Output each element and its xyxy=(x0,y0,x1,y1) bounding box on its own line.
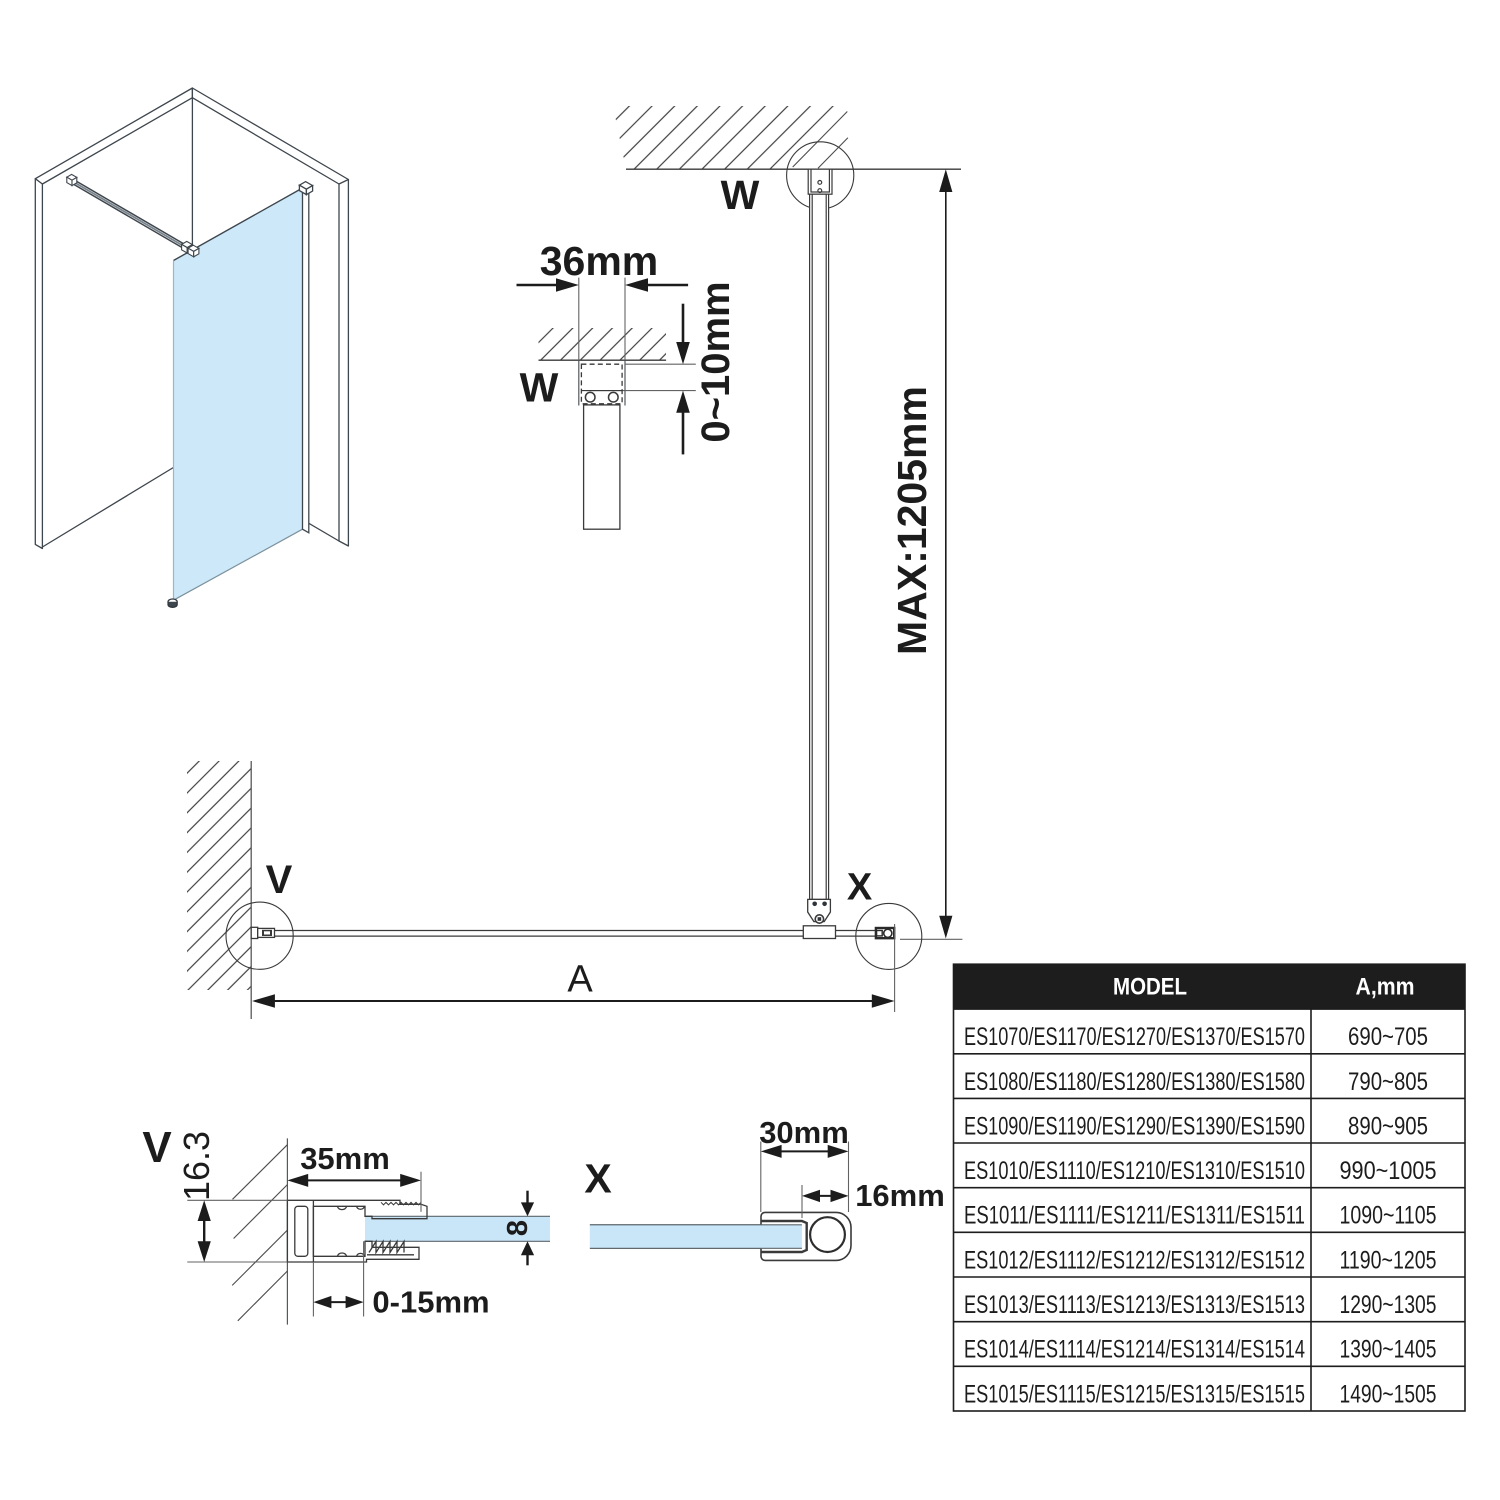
svg-text:0-15mm: 0-15mm xyxy=(372,1285,489,1320)
svg-text:ES1014/ES1114/ES1214/ES1314/ES: ES1014/ES1114/ES1214/ES1314/ES1514 xyxy=(964,1336,1305,1364)
svg-text:V: V xyxy=(266,858,293,902)
svg-text:35mm: 35mm xyxy=(300,1141,390,1176)
svg-text:ES1070/ES1170/ES1270/ES1370/ES: ES1070/ES1170/ES1270/ES1370/ES1570 xyxy=(964,1023,1305,1051)
svg-text:ES1011/ES1111/ES1211/ES1311/ES: ES1011/ES1111/ES1211/ES1311/ES1511 xyxy=(964,1202,1305,1230)
svg-text:ES1010/ES1110/ES1210/ES1310/ES: ES1010/ES1110/ES1210/ES1310/ES1510 xyxy=(964,1157,1305,1185)
svg-text:A,mm: A,mm xyxy=(1356,974,1415,1001)
svg-text:W: W xyxy=(721,172,760,218)
svg-text:ES1012/ES1112/ES1212/ES1312/ES: ES1012/ES1112/ES1212/ES1312/ES1512 xyxy=(964,1246,1305,1274)
svg-text:1490~1505: 1490~1505 xyxy=(1340,1380,1437,1408)
svg-text:X: X xyxy=(847,866,873,908)
svg-text:ES1015/ES1115/ES1215/ES1315/ES: ES1015/ES1115/ES1215/ES1315/ES1515 xyxy=(964,1380,1305,1408)
svg-text:ES1080/ES1180/ES1280/ES1380/ES: ES1080/ES1180/ES1280/ES1380/ES1580 xyxy=(964,1068,1305,1096)
svg-text:890~905: 890~905 xyxy=(1348,1112,1428,1140)
svg-text:8: 8 xyxy=(502,1220,534,1236)
svg-text:30mm: 30mm xyxy=(759,1115,849,1150)
svg-text:0~10mm: 0~10mm xyxy=(694,281,738,442)
svg-text:790~805: 790~805 xyxy=(1348,1068,1428,1096)
svg-text:990~1005: 990~1005 xyxy=(1340,1157,1437,1185)
svg-text:16.3: 16.3 xyxy=(176,1131,217,1201)
svg-text:36mm: 36mm xyxy=(540,238,659,284)
svg-text:MODEL: MODEL xyxy=(1113,974,1187,1001)
svg-text:ES1090/ES1190/ES1290/ES1390/ES: ES1090/ES1190/ES1290/ES1390/ES1590 xyxy=(964,1112,1305,1140)
svg-text:690~705: 690~705 xyxy=(1348,1023,1428,1051)
svg-text:1090~1105: 1090~1105 xyxy=(1340,1202,1437,1230)
svg-text:V: V xyxy=(142,1123,172,1172)
svg-text:ES1013/ES1113/ES1213/ES1313/ES: ES1013/ES1113/ES1213/ES1313/ES1513 xyxy=(964,1291,1305,1319)
svg-text:W: W xyxy=(520,365,559,411)
svg-text:MAX:1205mm: MAX:1205mm xyxy=(889,386,935,655)
svg-text:1190~1205: 1190~1205 xyxy=(1340,1246,1437,1274)
svg-text:1390~1405: 1390~1405 xyxy=(1340,1336,1437,1364)
svg-text:1290~1305: 1290~1305 xyxy=(1340,1291,1437,1319)
svg-text:A: A xyxy=(567,959,593,1001)
svg-text:X: X xyxy=(584,1156,611,1202)
svg-text:16mm: 16mm xyxy=(855,1178,945,1213)
